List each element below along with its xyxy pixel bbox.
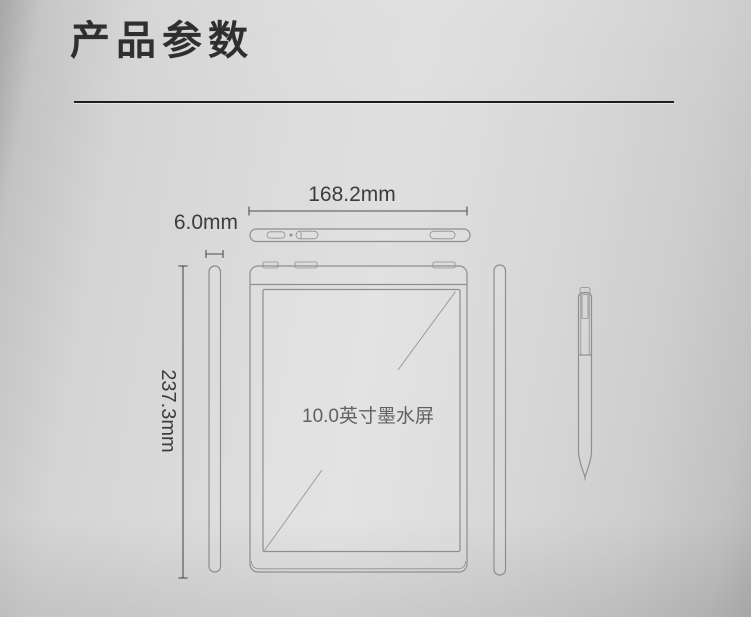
thickness-dimension-line xyxy=(206,250,223,258)
tablet-screen-outline xyxy=(263,290,460,552)
stylus-tip xyxy=(584,476,586,481)
tablet-left-side-view xyxy=(209,266,221,572)
product-parameters-section: 产品参数 168.2mm 6.0mm 237.3mm 10.0英寸墨水屏 xyxy=(0,0,751,617)
top-view-mic-hole xyxy=(290,234,293,237)
tablet-right-side-view xyxy=(494,265,506,575)
stylus-pen-drawing xyxy=(579,288,592,481)
tablet-dimension-drawing xyxy=(0,0,751,617)
tablet-top-view xyxy=(250,229,470,242)
width-dimension-line xyxy=(249,207,467,216)
height-dimension-line xyxy=(179,266,188,578)
tablet-front-view xyxy=(250,262,467,572)
